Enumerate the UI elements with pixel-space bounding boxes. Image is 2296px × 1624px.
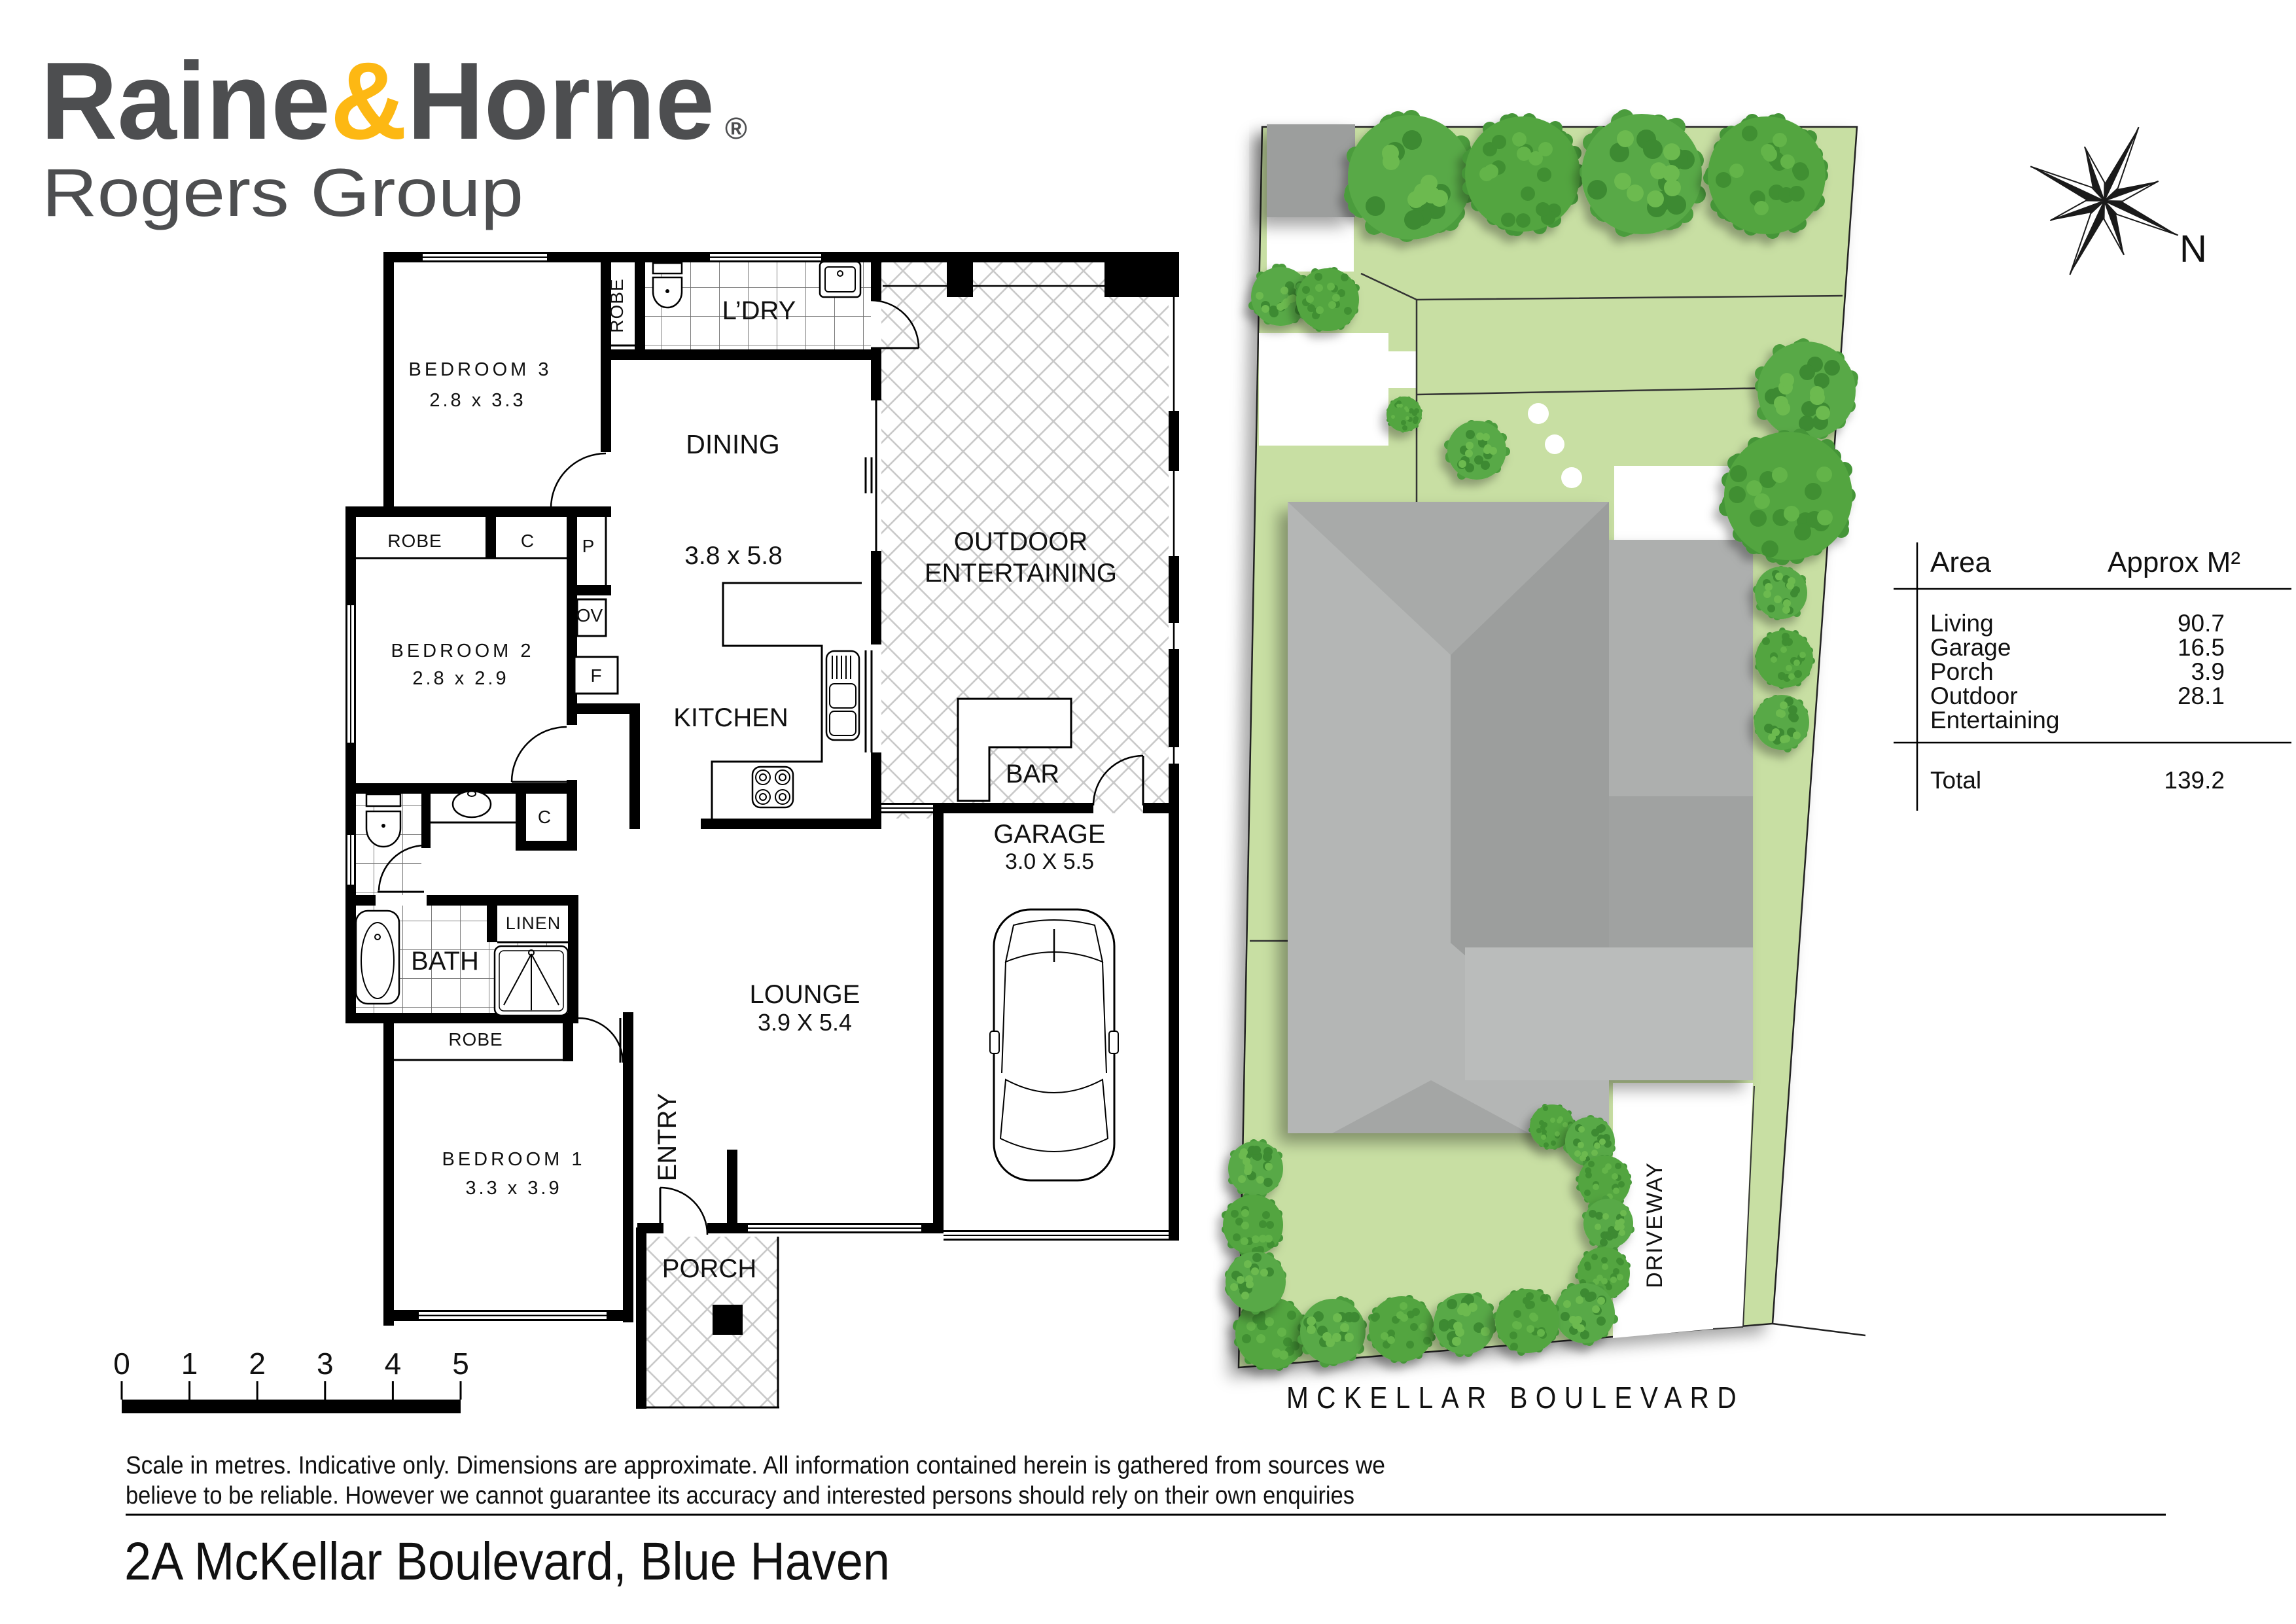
svg-text:KITCHEN: KITCHEN bbox=[673, 703, 788, 732]
svg-text:ROBE: ROBE bbox=[607, 278, 627, 332]
svg-text:MCKELLAR BOULEVARD: MCKELLAR BOULEVARD bbox=[1286, 1381, 1744, 1415]
svg-text:3.9: 3.9 bbox=[2191, 658, 2225, 685]
svg-text:3.8 x 5.8: 3.8 x 5.8 bbox=[684, 542, 783, 570]
svg-text:16.5: 16.5 bbox=[2178, 634, 2225, 661]
svg-text:OV: OV bbox=[576, 605, 603, 626]
svg-text:3: 3 bbox=[317, 1347, 334, 1381]
svg-text:BATH: BATH bbox=[411, 947, 479, 976]
svg-text:3.0 X 5.5: 3.0 X 5.5 bbox=[1005, 849, 1094, 874]
svg-text:5: 5 bbox=[452, 1347, 469, 1381]
svg-text:Area: Area bbox=[1930, 546, 1991, 578]
svg-text:Porch: Porch bbox=[1930, 658, 1994, 685]
svg-text:DRIVEWAY: DRIVEWAY bbox=[1642, 1161, 1667, 1288]
svg-text:1: 1 bbox=[181, 1347, 198, 1381]
svg-text:ROBE: ROBE bbox=[448, 1029, 503, 1050]
svg-text:BAR: BAR bbox=[1006, 760, 1059, 788]
svg-text:Total: Total bbox=[1930, 767, 1981, 794]
svg-text:ROBE: ROBE bbox=[387, 531, 442, 551]
svg-text:2A McKellar Boulevard, Blue Ha: 2A McKellar Boulevard, Blue Haven bbox=[124, 1532, 890, 1591]
svg-text:Outdoor: Outdoor bbox=[1930, 682, 2018, 709]
svg-text:BEDROOM 3: BEDROOM 3 bbox=[408, 359, 552, 380]
svg-text:Scale in metres. Indicative on: Scale in metres. Indicative only. Dimens… bbox=[126, 1452, 1385, 1479]
svg-text:Garage: Garage bbox=[1930, 634, 2011, 661]
svg-text:N: N bbox=[2180, 228, 2207, 270]
svg-text:BEDROOM 2: BEDROOM 2 bbox=[391, 641, 534, 662]
svg-text:ENTERTAINING: ENTERTAINING bbox=[925, 559, 1117, 588]
svg-text:3.3 x 3.9: 3.3 x 3.9 bbox=[465, 1178, 561, 1199]
svg-text:0: 0 bbox=[113, 1347, 130, 1381]
svg-text:F: F bbox=[590, 665, 601, 686]
svg-text:2.8 x 3.3: 2.8 x 3.3 bbox=[429, 390, 525, 411]
svg-text:P: P bbox=[582, 536, 595, 556]
svg-text:Approx M²: Approx M² bbox=[2108, 546, 2240, 578]
svg-text:DINING: DINING bbox=[686, 429, 780, 459]
svg-text:LOUNGE: LOUNGE bbox=[750, 980, 860, 1009]
svg-text:Rogers Group: Rogers Group bbox=[42, 155, 523, 231]
svg-text:4: 4 bbox=[385, 1347, 402, 1381]
svg-text:LINEN: LINEN bbox=[506, 913, 561, 933]
svg-text:®: ® bbox=[725, 111, 747, 145]
svg-text:2.8 x 2.9: 2.8 x 2.9 bbox=[412, 668, 508, 689]
svg-text:Living: Living bbox=[1930, 610, 1994, 637]
svg-text:90.7: 90.7 bbox=[2178, 610, 2225, 637]
svg-text:GARAGE: GARAGE bbox=[993, 820, 1105, 849]
svg-text:ENTRY: ENTRY bbox=[653, 1093, 682, 1182]
svg-text:Raine&Horne: Raine&Horne bbox=[41, 39, 715, 162]
svg-text:BEDROOM 1: BEDROOM 1 bbox=[442, 1149, 585, 1170]
svg-text:L’DRY: L’DRY bbox=[722, 296, 796, 325]
svg-text:3.9 X 5.4: 3.9 X 5.4 bbox=[758, 1009, 852, 1036]
svg-text:2: 2 bbox=[249, 1347, 266, 1381]
svg-text:PORCH: PORCH bbox=[662, 1254, 756, 1283]
svg-text:believe to be reliable. Howeve: believe to be reliable. However we canno… bbox=[126, 1482, 1354, 1509]
svg-text:C: C bbox=[538, 807, 551, 827]
svg-text:139.2: 139.2 bbox=[2164, 767, 2225, 794]
svg-text:OUTDOOR: OUTDOOR bbox=[954, 527, 1087, 556]
svg-text:28.1: 28.1 bbox=[2178, 682, 2225, 709]
svg-text:C: C bbox=[521, 531, 534, 551]
svg-text:Entertaining: Entertaining bbox=[1930, 707, 2059, 733]
